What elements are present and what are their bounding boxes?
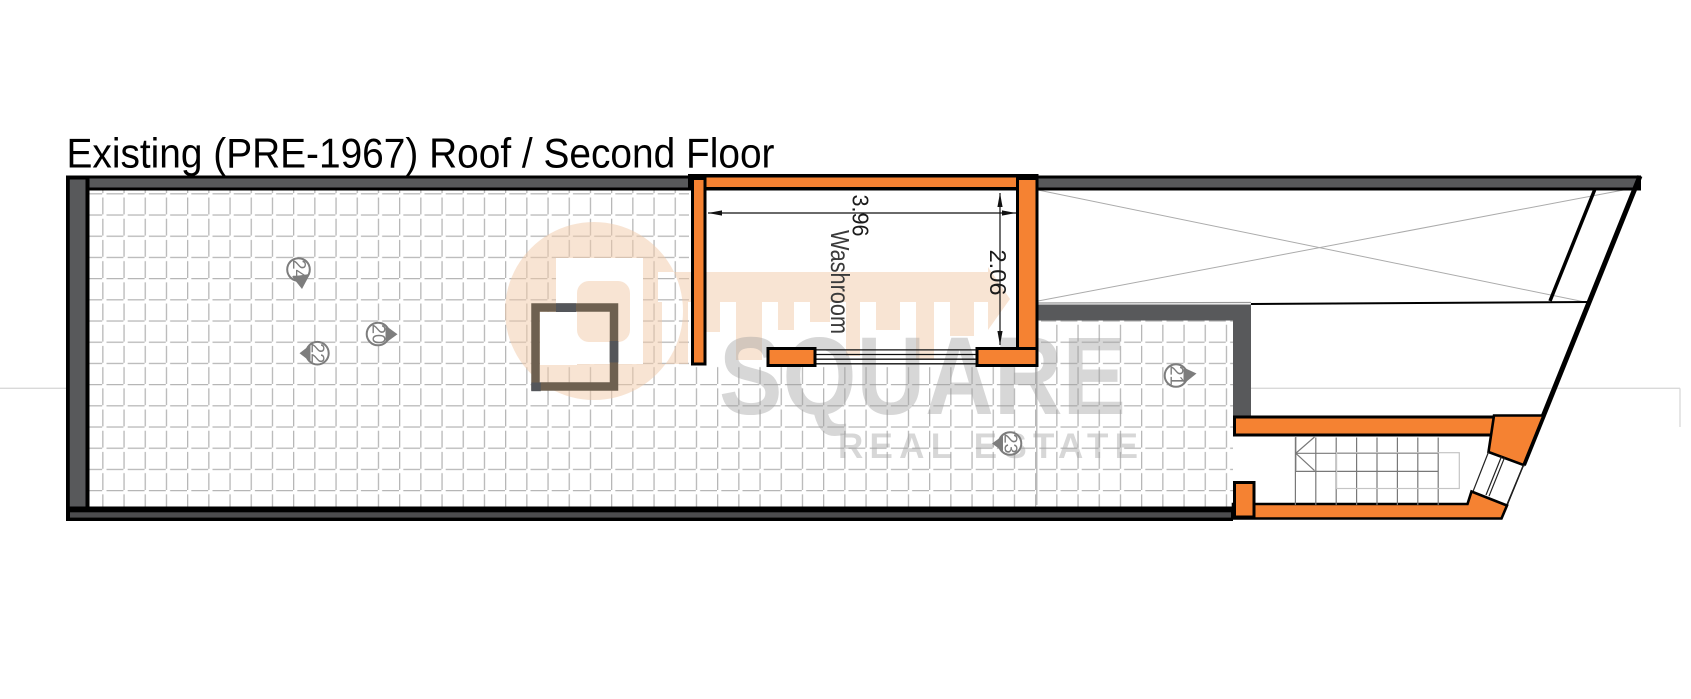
svg-text:23: 23 <box>1000 433 1020 453</box>
svg-text:24: 24 <box>289 259 309 279</box>
svg-text:22: 22 <box>308 343 328 363</box>
svg-text:SQUARE: SQUARE <box>719 315 1126 438</box>
svg-text:REAL ESTATE: REAL ESTATE <box>838 427 1138 466</box>
svg-text:20: 20 <box>368 324 388 344</box>
svg-text:Washroom: Washroom <box>825 230 855 334</box>
svg-text:21: 21 <box>1166 365 1186 385</box>
svg-text:2.06: 2.06 <box>985 250 1011 296</box>
svg-text:Existing (PRE-1967) Roof / Sec: Existing (PRE-1967) Roof / Second Floor <box>67 130 775 177</box>
